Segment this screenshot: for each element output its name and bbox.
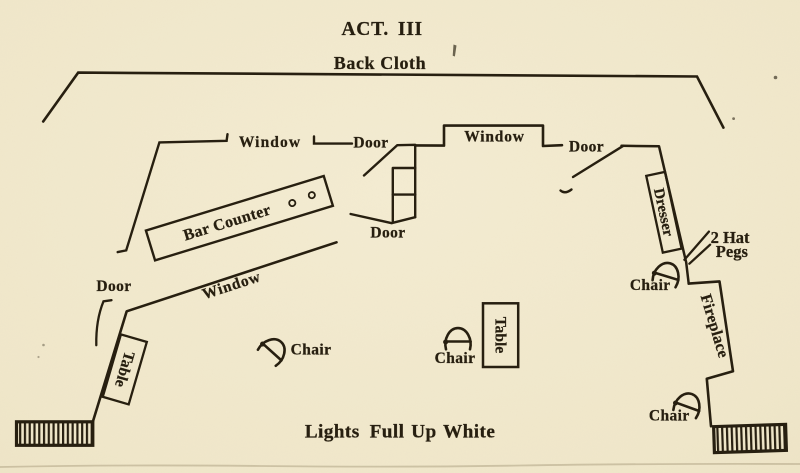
svg-text:Window: Window xyxy=(464,129,525,146)
svg-text:Window: Window xyxy=(239,134,301,151)
svg-text:LightsFull Up White: LightsFull Up White xyxy=(305,422,496,443)
svg-text:Table: Table xyxy=(492,317,509,354)
svg-text:Door: Door xyxy=(353,135,388,152)
svg-text:Door: Door xyxy=(569,139,604,156)
svg-text:Chair: Chair xyxy=(630,277,671,294)
svg-text:Chair: Chair xyxy=(435,350,476,367)
svg-text:Door: Door xyxy=(370,225,405,242)
svg-text:Back Cloth: Back Cloth xyxy=(334,53,427,73)
svg-text:Chair: Chair xyxy=(291,342,332,359)
svg-text:Pegs: Pegs xyxy=(716,242,749,261)
svg-text:Door: Door xyxy=(96,278,131,295)
svg-text:Chair: Chair xyxy=(649,408,690,425)
svg-text:ACT.III: ACT.III xyxy=(342,19,423,40)
